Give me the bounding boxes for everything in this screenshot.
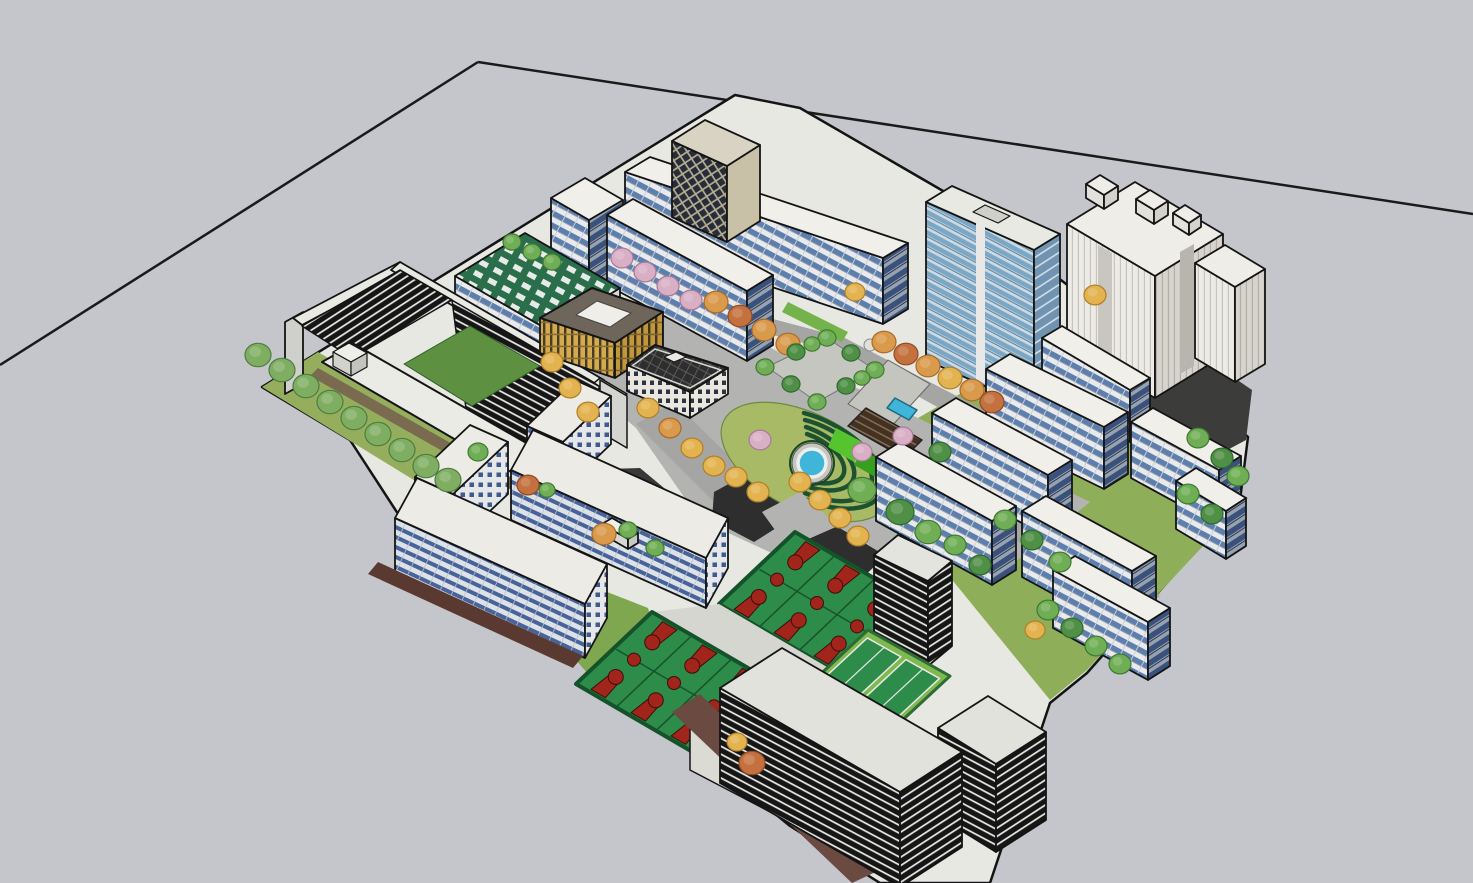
tree-highlight — [751, 485, 761, 494]
tree-highlight — [1088, 288, 1098, 297]
tree-highlight — [661, 279, 671, 288]
tree-highlight — [707, 459, 717, 468]
cross-tower-recess-b — [1180, 244, 1194, 374]
tree-highlight — [1205, 507, 1215, 516]
basketball-block-north-key-circle — [791, 613, 806, 628]
tree-highlight — [732, 308, 743, 318]
tree-highlight — [708, 294, 719, 304]
tree-highlight — [785, 378, 793, 385]
tree-highlight — [743, 755, 755, 765]
tree-highlight — [811, 396, 819, 403]
tree-highlight — [345, 410, 357, 420]
tree-highlight — [273, 362, 285, 372]
tree-highlight — [730, 736, 739, 744]
tree-highlight — [581, 405, 591, 414]
cross-tower-east-face-se — [1235, 269, 1265, 382]
basketball-block-north-key-circle — [828, 578, 843, 593]
tree-highlight — [297, 378, 309, 388]
tree-highlight — [840, 380, 848, 387]
tree-highlight — [813, 493, 823, 502]
tree-highlight — [615, 251, 625, 260]
tree-highlight — [321, 394, 333, 404]
tree-highlight — [793, 475, 803, 484]
basketball-block-north-center-circle — [811, 597, 824, 610]
model-canvas — [0, 0, 1473, 883]
tree-highlight — [685, 441, 695, 450]
tree-highlight — [526, 246, 534, 253]
tree-highlight — [898, 346, 909, 356]
basketball-block-north-key-circle — [788, 555, 803, 570]
glass-tower-mullion — [976, 219, 985, 384]
tree-highlight — [545, 355, 555, 364]
basketball-block-north-key-circle — [751, 589, 766, 604]
tree-highlight — [249, 347, 261, 357]
tree-highlight — [896, 430, 905, 438]
tree-highlight — [756, 322, 767, 332]
tree-highlight — [973, 558, 983, 567]
basketball-block-south-key-circle — [685, 658, 700, 673]
tree-highlight — [759, 361, 767, 368]
tree-highlight — [506, 236, 514, 243]
tree-highlight — [920, 358, 931, 368]
tree-highlight — [1231, 469, 1241, 478]
tree-highlight — [641, 401, 651, 410]
tree-highlight — [563, 381, 573, 390]
tree-highlight — [780, 336, 791, 346]
basketball-block-south-center-circle — [668, 677, 681, 690]
tree-highlight — [948, 538, 958, 547]
tree-highlight — [821, 332, 829, 339]
tree-highlight — [638, 265, 648, 274]
tree-highlight — [964, 382, 975, 392]
tree-highlight — [1215, 451, 1225, 460]
tree-highlight — [853, 481, 866, 492]
tree-highlight — [369, 426, 381, 436]
tree-highlight — [1191, 431, 1201, 440]
tree-highlight — [1025, 533, 1035, 542]
tree-highlight — [521, 478, 531, 487]
tree-highlight — [393, 442, 405, 452]
tree-highlight — [649, 542, 657, 549]
tree-highlight — [984, 394, 995, 404]
basketball-block-north-center-circle — [851, 620, 864, 633]
tree-highlight — [417, 458, 429, 468]
tree-highlight — [933, 445, 943, 454]
tree-highlight — [807, 339, 814, 345]
tree-highlight — [848, 286, 857, 294]
tree-highlight — [855, 446, 864, 454]
tree-highlight — [942, 370, 953, 380]
tree-highlight — [919, 524, 931, 534]
basketball-block-north-key-circle — [831, 636, 846, 651]
tree-highlight — [857, 373, 864, 379]
model-shapes — [0, 62, 1473, 883]
tree-highlight — [546, 256, 554, 263]
tree-highlight — [998, 513, 1008, 522]
tree-highlight — [729, 470, 739, 479]
basketball-block-south-key-circle — [608, 669, 623, 684]
tree-highlight — [753, 433, 763, 442]
tree-highlight — [471, 446, 480, 454]
tree-highlight — [622, 524, 630, 531]
tree-highlight — [891, 503, 904, 514]
tree-highlight — [845, 347, 853, 354]
basketball-block-south-center-circle — [628, 653, 641, 666]
tree-highlight — [1113, 657, 1123, 666]
tree-highlight — [869, 364, 877, 371]
tree-highlight — [439, 472, 451, 482]
tree-highlight — [833, 511, 843, 520]
basketball-block-south-key-circle — [648, 693, 663, 708]
tree-highlight — [596, 526, 607, 536]
tree-highlight — [1181, 487, 1191, 496]
sketchup-viewport[interactable] — [0, 0, 1473, 883]
tree-highlight — [1053, 555, 1063, 564]
tree-highlight — [790, 346, 798, 353]
tree-highlight — [542, 485, 549, 491]
basketball-block-north-center-circle — [771, 573, 784, 586]
basketball-block-south-key-circle — [645, 635, 660, 650]
tree-highlight — [1028, 624, 1037, 632]
tree-highlight — [1041, 603, 1051, 612]
tree-highlight — [851, 529, 861, 538]
tree-highlight — [663, 421, 673, 430]
tree-highlight — [1089, 639, 1099, 648]
tree-highlight — [684, 293, 694, 302]
tree-highlight — [1065, 621, 1075, 630]
tree-highlight — [876, 334, 887, 344]
